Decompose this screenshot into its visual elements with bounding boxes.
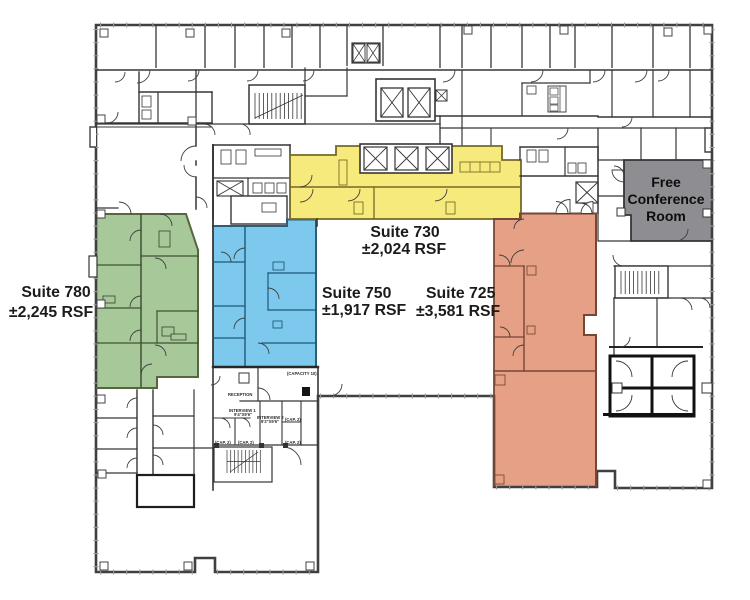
- svg-text:±2,024 RSF: ±2,024 RSF: [362, 241, 447, 258]
- svg-text:±2,245 RSF: ±2,245 RSF: [9, 304, 94, 321]
- svg-text:Room: Room: [646, 208, 686, 224]
- svg-text:Suite 780: Suite 780: [21, 284, 91, 301]
- svg-text:(CAP. 2): (CAP. 2): [238, 440, 254, 445]
- svg-text:9'2"X9'6": 9'2"X9'6": [261, 419, 279, 424]
- svg-text:(CAPACITY 10): (CAPACITY 10): [287, 371, 317, 376]
- svg-text:RECEPTION: RECEPTION: [228, 392, 252, 397]
- svg-text:Free: Free: [651, 174, 681, 190]
- svg-text:Conference: Conference: [627, 191, 704, 207]
- svg-text:9'4"X9'6": 9'4"X9'6": [234, 412, 252, 417]
- svg-text:(CAP. 2): (CAP. 2): [285, 440, 301, 445]
- svg-text:(CAP. 2): (CAP. 2): [285, 417, 301, 422]
- svg-text:Suite 730: Suite 730: [370, 224, 440, 241]
- svg-text:Suite 725: Suite 725: [426, 285, 496, 302]
- svg-text:±3,581 RSF: ±3,581 RSF: [416, 303, 501, 320]
- svg-text:±1,917 RSF: ±1,917 RSF: [322, 302, 407, 319]
- svg-text:Suite 750: Suite 750: [322, 285, 392, 302]
- svg-text:(CAP. 2): (CAP. 2): [215, 440, 231, 445]
